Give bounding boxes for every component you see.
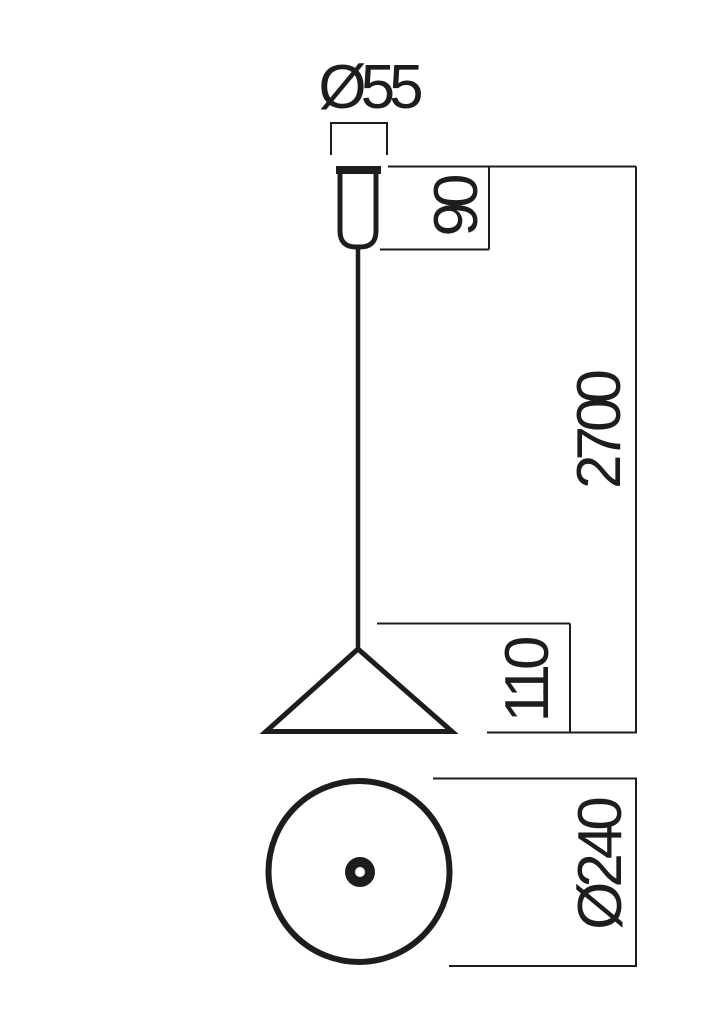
canopy-height-dimension-lines	[380, 167, 636, 250]
label-suspension-length: 2700	[565, 371, 634, 489]
lamp-outline	[266, 168, 452, 962]
label-canopy-height: 90	[422, 175, 491, 236]
canopy-diameter-bracket	[331, 123, 387, 155]
shade-bottom-view-outline	[269, 781, 450, 962]
page-body: { "drawing": { "background": "#ffffff", …	[0, 0, 717, 1024]
center-hub-ring	[350, 862, 370, 882]
canopy-outline	[340, 168, 376, 247]
shade-cone-outline	[266, 649, 452, 732]
dimension-labels: Ø55 90 2700 110 Ø240	[318, 53, 635, 930]
label-canopy-diameter: Ø55	[318, 53, 421, 122]
pendant-lamp-dimension-drawing: Ø55 90 2700 110 Ø240	[0, 0, 717, 1024]
label-shade-height: 110	[493, 637, 562, 722]
label-shade-diameter: Ø240	[566, 798, 635, 930]
technical-drawing-page: Ø55 90 2700 110 Ø240	[0, 0, 717, 1024]
